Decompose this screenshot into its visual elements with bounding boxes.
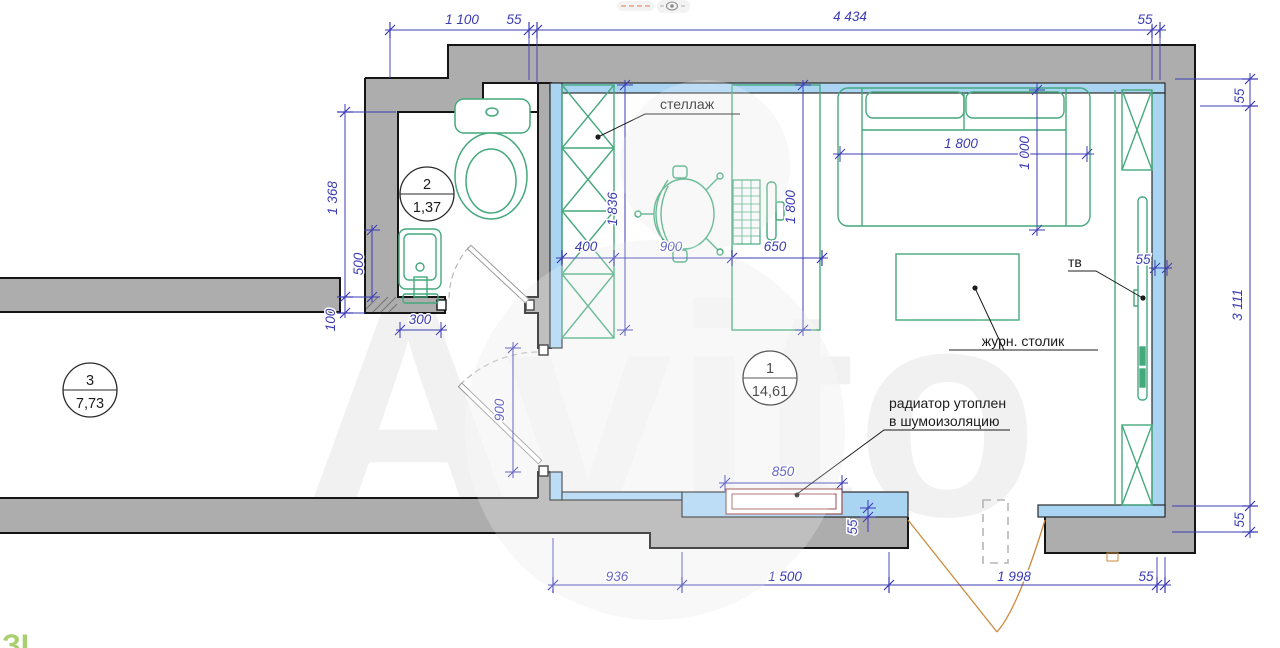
dim-text: 1 998 <box>997 569 1031 584</box>
room-number: 2 <box>423 177 431 193</box>
corner-fragment: ЗІ <box>2 629 29 648</box>
dim-text: 1 836 <box>605 192 620 226</box>
watermark-circle <box>620 80 790 250</box>
insulation-right <box>1152 93 1165 513</box>
dim-text: 1 100 <box>445 12 479 27</box>
top-ui-remnant <box>617 0 690 13</box>
room-badge-2: 2 1,37 <box>400 167 454 221</box>
dim-text: 55 <box>1232 88 1247 104</box>
floor-plan-svg: Avito <box>0 0 1280 648</box>
eye-pupil-icon <box>670 4 674 8</box>
room-badge-3: 3 7,73 <box>63 363 117 417</box>
dim-text: 1 000 <box>1017 136 1032 170</box>
annotation-text: тв <box>1068 254 1082 270</box>
dim-text: 55 <box>1137 12 1153 27</box>
dim-text: 100 <box>323 308 338 331</box>
wall-corridor-top <box>0 278 340 312</box>
dim-text: 1 800 <box>783 190 798 224</box>
leader-line <box>1068 271 1141 297</box>
dim-text: 300 <box>409 312 432 327</box>
toilet <box>455 99 530 219</box>
dim-text: 55 <box>506 12 522 27</box>
watermark-circle <box>465 240 845 620</box>
annotation-text: в шумоизоляцию <box>889 413 999 429</box>
floor-plan-screenshot: Avito <box>0 0 1280 648</box>
room-number: 3 <box>86 373 94 389</box>
wall-right <box>1165 45 1195 553</box>
dim-text: 3 111 <box>1230 289 1245 321</box>
room-area: 7,73 <box>76 396 104 412</box>
dim-text: 55 <box>845 519 860 535</box>
dim-text: 650 <box>764 239 787 254</box>
dim-text: 1 800 <box>944 136 978 151</box>
wall-corridor-bottom <box>0 498 557 533</box>
dim-text: 1 368 <box>325 181 340 215</box>
annotation-text: радиатор утоплен <box>889 395 1006 411</box>
dim-text: 55 <box>1138 569 1154 584</box>
wall-cabinet-bottom <box>1122 425 1152 505</box>
dim-text: 4 434 <box>833 9 867 24</box>
leader-dot <box>1140 295 1145 300</box>
dim-text: 500 <box>351 252 366 275</box>
wall-top-main <box>448 45 1195 83</box>
dim-text: 55 <box>1135 252 1151 267</box>
wall-bath-left <box>365 78 398 313</box>
wall-bottom-right <box>1045 517 1195 553</box>
balcony-threshold <box>1107 553 1118 561</box>
dim-text: 55 <box>1232 512 1247 528</box>
room-area: 1,37 <box>413 200 441 216</box>
sofa <box>838 88 1090 226</box>
insulation-bottom-right <box>1038 505 1165 517</box>
wall-cabinet-top <box>1122 90 1152 170</box>
visibility-toggle[interactable] <box>657 0 690 13</box>
annotation-text: журн. столик <box>982 333 1065 349</box>
